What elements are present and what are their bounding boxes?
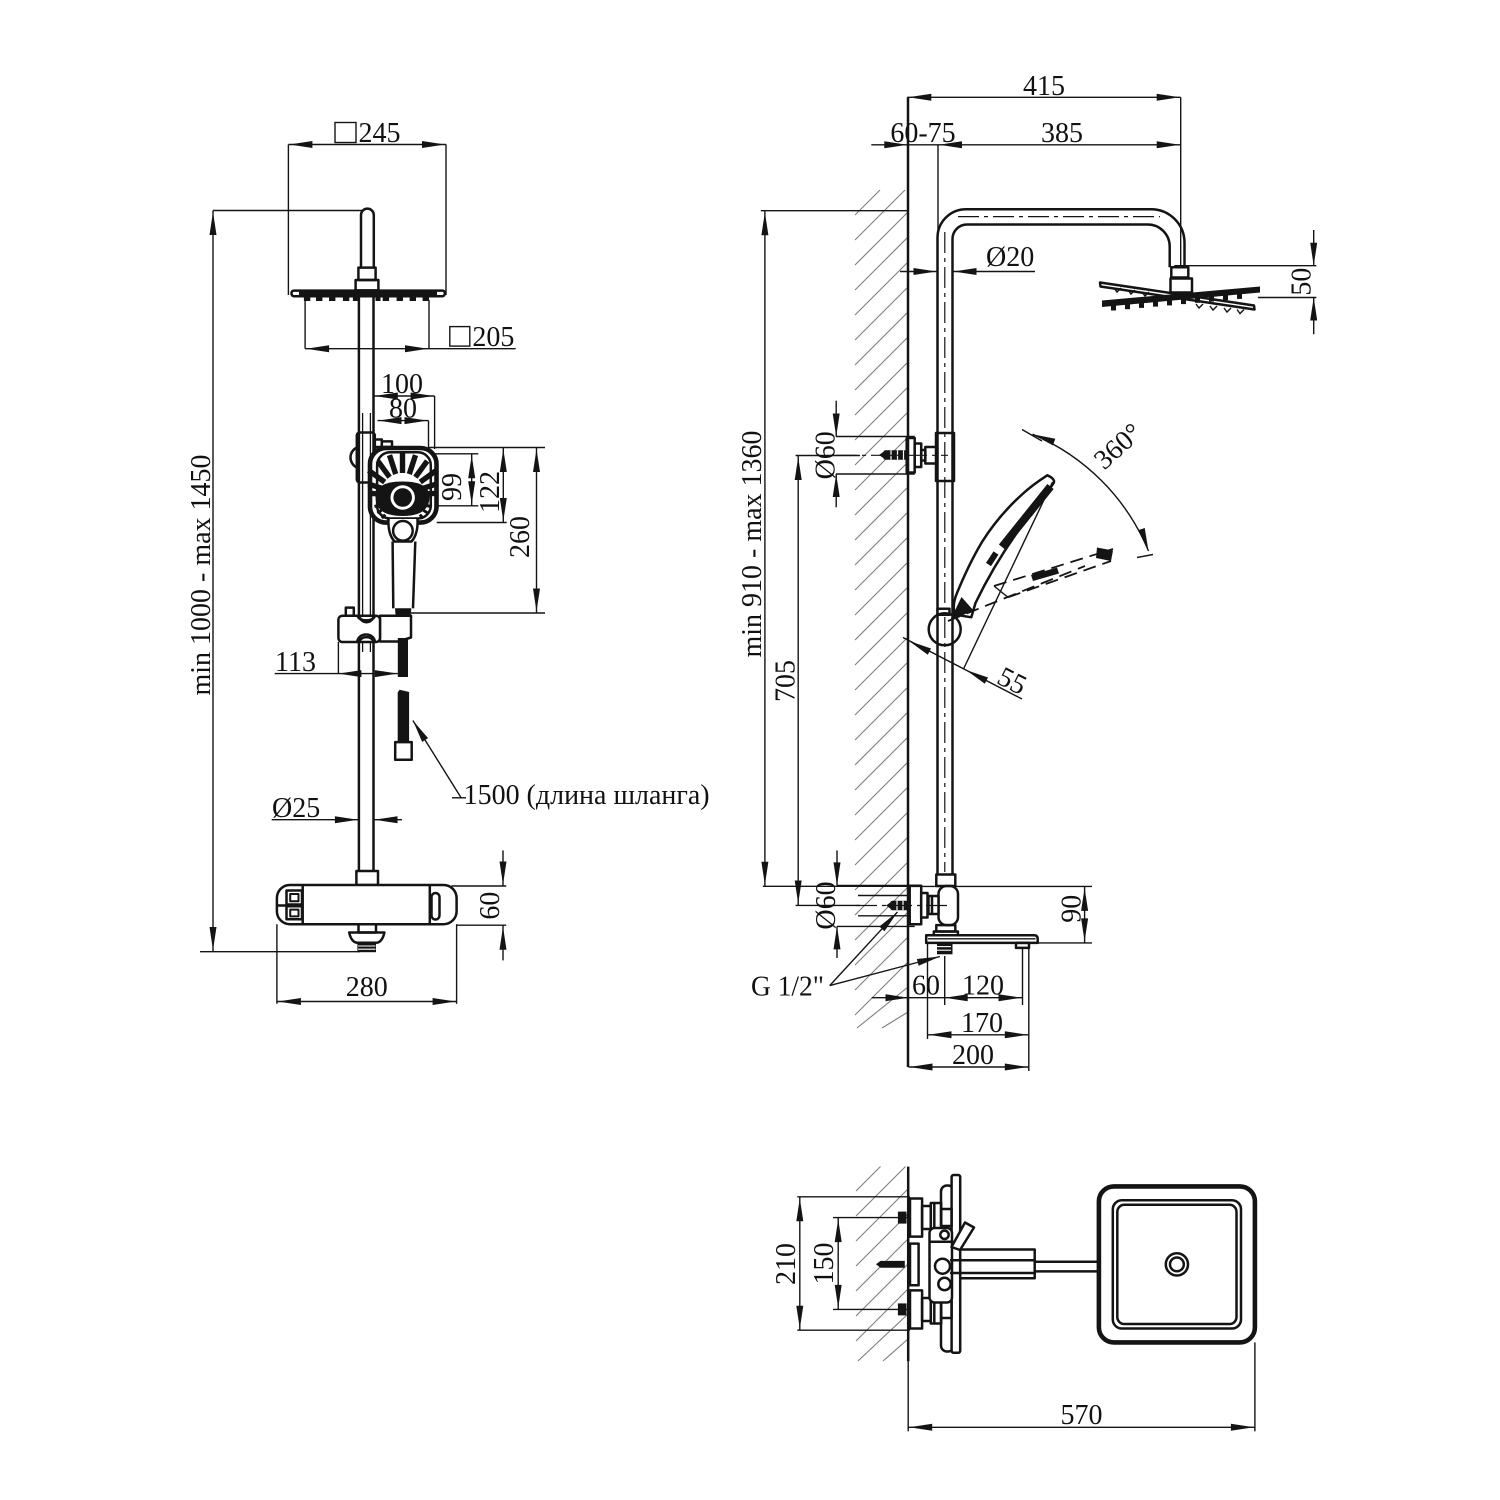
svg-text:99: 99 [437, 473, 468, 501]
svg-text:705: 705 [771, 660, 802, 702]
svg-text:210: 210 [771, 1243, 802, 1285]
svg-text:122: 122 [475, 471, 506, 513]
svg-text:Ø20: Ø20 [986, 242, 1034, 273]
svg-text:min 1000 - max 1450: min 1000 - max 1450 [186, 454, 217, 695]
svg-text:min 910 - max 1360: min 910 - max 1360 [737, 430, 768, 657]
svg-text:245: 245 [359, 118, 401, 149]
svg-text:Ø25: Ø25 [272, 793, 320, 824]
svg-text:60: 60 [475, 892, 506, 920]
svg-text:Ø60: Ø60 [811, 431, 842, 479]
svg-text:415: 415 [1023, 71, 1065, 102]
svg-text:120: 120 [962, 971, 1004, 1002]
svg-text:205: 205 [472, 322, 514, 353]
svg-text:Ø60: Ø60 [811, 881, 842, 929]
svg-text:170: 170 [961, 1008, 1003, 1039]
svg-text:60: 60 [912, 971, 940, 1002]
svg-text:80: 80 [389, 394, 417, 425]
svg-text:150: 150 [809, 1243, 840, 1285]
svg-text:280: 280 [346, 972, 388, 1003]
svg-text:50: 50 [1287, 268, 1318, 296]
svg-text:200: 200 [952, 1040, 994, 1071]
svg-text:90: 90 [1057, 895, 1088, 923]
svg-text:G 1/2": G 1/2" [751, 972, 824, 1003]
svg-text:570: 570 [1061, 1400, 1103, 1431]
svg-text:385: 385 [1041, 118, 1083, 149]
svg-text:113: 113 [275, 647, 316, 678]
svg-text:1500 (длина шланга): 1500 (длина шланга) [464, 780, 710, 811]
svg-text:260: 260 [505, 516, 536, 558]
